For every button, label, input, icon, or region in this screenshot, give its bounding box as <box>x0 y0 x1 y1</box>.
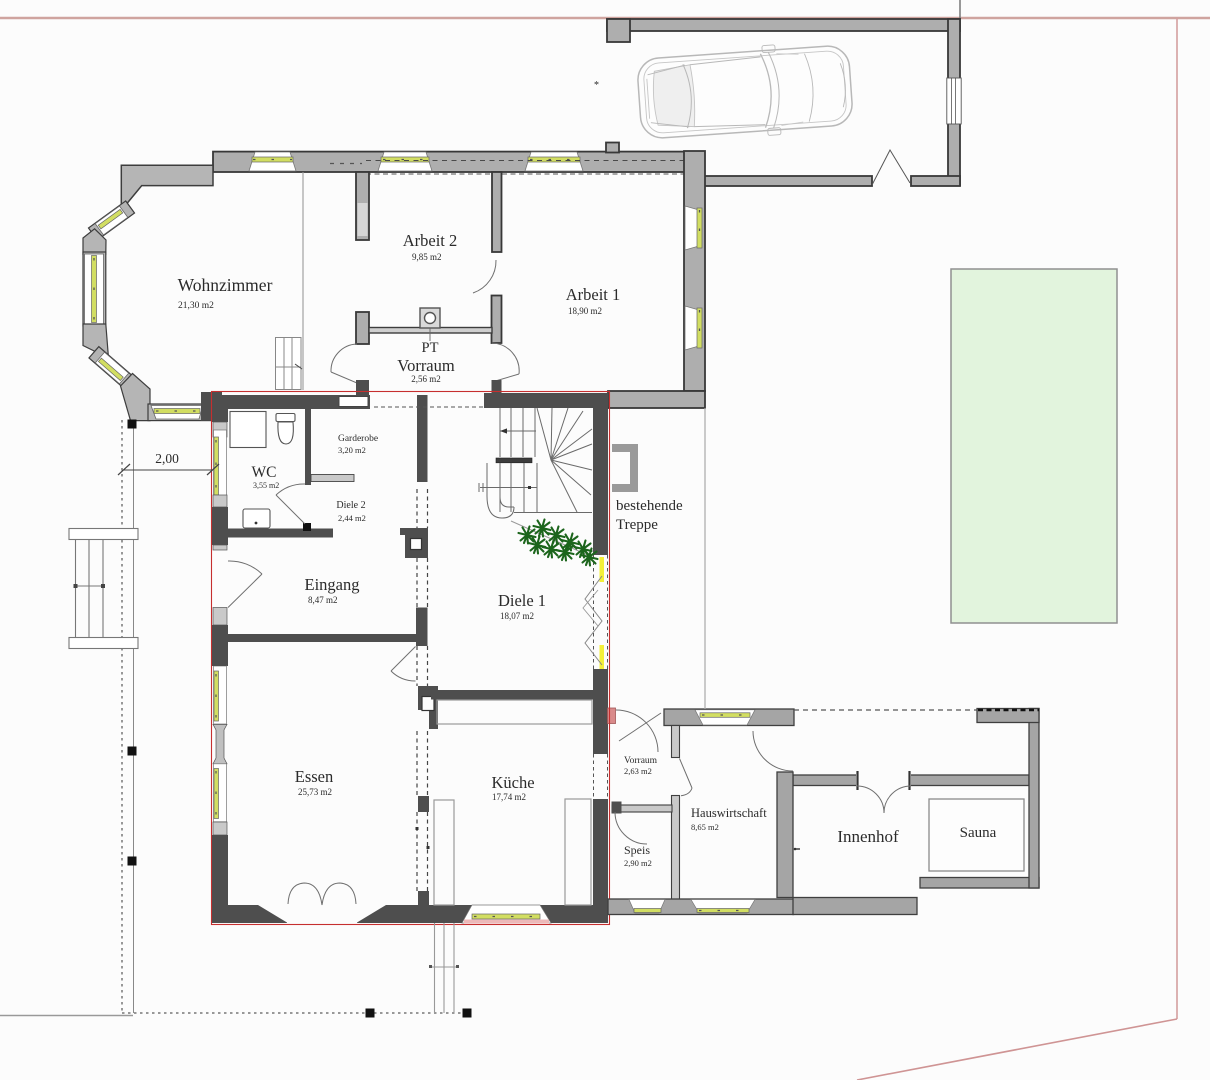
svg-text:3,20 m2: 3,20 m2 <box>338 445 366 455</box>
svg-text:17,74 m2: 17,74 m2 <box>492 792 526 802</box>
svg-text:Garderobe: Garderobe <box>338 434 378 444</box>
svg-text:21,30 m2: 21,30 m2 <box>178 301 214 311</box>
svg-text:WC: WC <box>252 464 277 481</box>
svg-text:Wohnzimmer: Wohnzimmer <box>178 275 273 295</box>
svg-text:Küche: Küche <box>491 773 534 792</box>
svg-text:2,56 m2: 2,56 m2 <box>411 374 441 384</box>
svg-text:Hauswirtschaft: Hauswirtschaft <box>691 806 767 820</box>
svg-text:18,90 m2: 18,90 m2 <box>568 306 602 316</box>
svg-text:18,07 m2: 18,07 m2 <box>500 611 534 621</box>
svg-text:Diele 1: Diele 1 <box>498 591 546 610</box>
svg-text:Vorraum: Vorraum <box>397 356 455 375</box>
svg-text:Vorraum: Vorraum <box>624 756 658 766</box>
svg-text:PT: PT <box>422 340 439 356</box>
svg-text:Arbeit 2: Arbeit 2 <box>403 231 458 250</box>
svg-text:*: * <box>594 80 599 91</box>
svg-text:8,65 m2: 8,65 m2 <box>691 822 719 832</box>
svg-text:Essen: Essen <box>295 767 334 786</box>
svg-text:Speis: Speis <box>624 843 650 857</box>
svg-text:Arbeit 1: Arbeit 1 <box>566 285 621 304</box>
svg-text:Sauna: Sauna <box>960 825 997 841</box>
svg-text:Treppe: Treppe <box>616 517 658 533</box>
svg-text:2,44 m2: 2,44 m2 <box>338 513 366 523</box>
svg-text:25,73 m2: 25,73 m2 <box>298 787 332 797</box>
svg-text:2,63 m2: 2,63 m2 <box>624 766 652 776</box>
svg-text:bestehende: bestehende <box>616 498 683 514</box>
svg-text:Eingang: Eingang <box>305 575 360 594</box>
svg-text:Innenhof: Innenhof <box>837 827 899 846</box>
svg-text:2,00: 2,00 <box>155 451 179 466</box>
svg-text:2,90 m2: 2,90 m2 <box>624 858 652 868</box>
svg-text:Diele 2: Diele 2 <box>336 500 365 511</box>
svg-text:8,47 m2: 8,47 m2 <box>308 595 338 605</box>
svg-text:9,85 m2: 9,85 m2 <box>412 252 442 262</box>
svg-text:3,55 m2: 3,55 m2 <box>253 481 279 490</box>
